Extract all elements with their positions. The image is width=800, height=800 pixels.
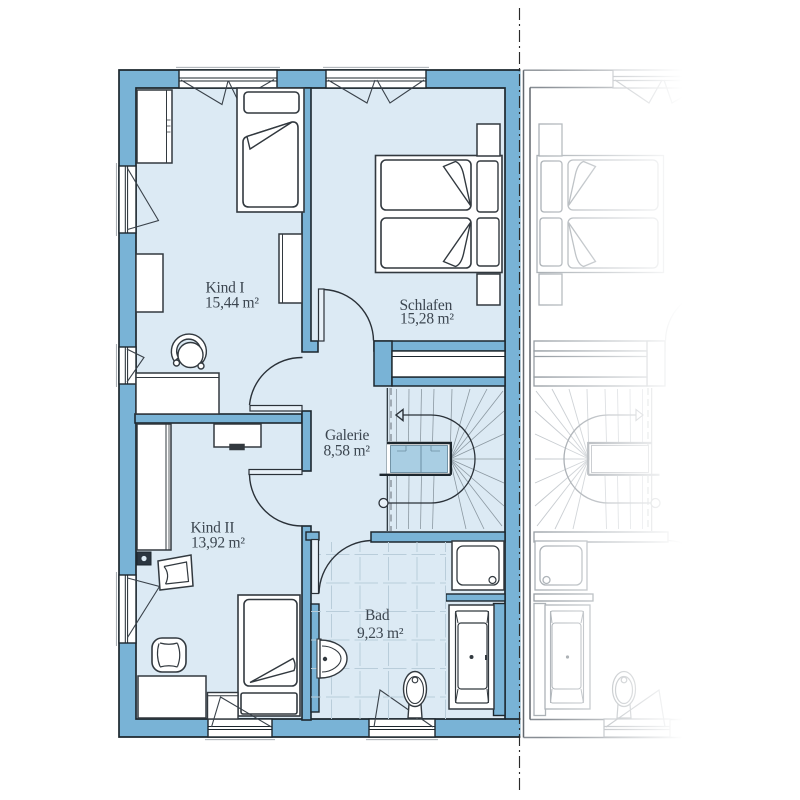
svg-text:8,58 m²: 8,58 m² [324, 443, 371, 460]
svg-text:9,23 m²: 9,23 m² [357, 625, 404, 642]
svg-text:Bad: Bad [365, 607, 390, 624]
svg-text:13,92 m²: 13,92 m² [191, 535, 245, 552]
svg-text:Galerie: Galerie [325, 427, 370, 444]
svg-text:15,28 m²: 15,28 m² [400, 311, 454, 328]
svg-text:15,44 m²: 15,44 m² [205, 295, 259, 312]
